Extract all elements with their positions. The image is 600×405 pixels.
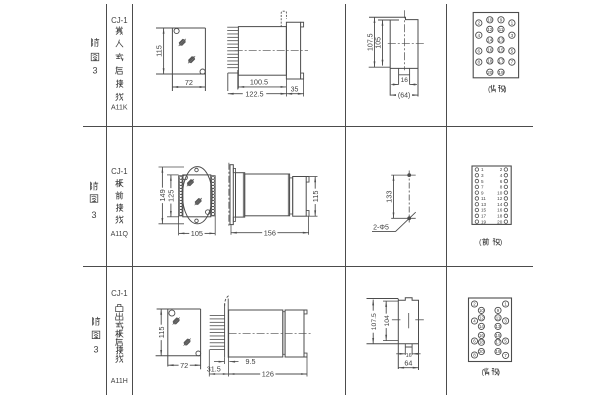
svg-text:3: 3 <box>92 66 97 76</box>
svg-text:72: 72 <box>180 361 188 370</box>
svg-text:1: 1 <box>481 167 484 172</box>
svg-text:20: 20 <box>497 219 503 224</box>
svg-text:13: 13 <box>498 38 504 43</box>
svg-text:104: 104 <box>384 315 391 327</box>
svg-text:20: 20 <box>487 70 493 75</box>
svg-text:115: 115 <box>311 190 320 202</box>
svg-text:2: 2 <box>477 21 480 26</box>
svg-text:11: 11 <box>496 315 501 320</box>
svg-text:A11K: A11K <box>111 105 128 112</box>
svg-text:12: 12 <box>479 315 484 320</box>
svg-text:18: 18 <box>479 340 484 345</box>
svg-text:133: 133 <box>385 191 394 203</box>
svg-text:3: 3 <box>93 344 98 354</box>
svg-text:16: 16 <box>497 208 503 213</box>
svg-text:11: 11 <box>481 196 486 201</box>
svg-text:2-Φ5: 2-Φ5 <box>373 224 389 231</box>
svg-text:10: 10 <box>487 17 493 22</box>
svg-text:18: 18 <box>487 59 493 64</box>
svg-text:20: 20 <box>479 349 484 354</box>
svg-text:115: 115 <box>155 45 164 57</box>
svg-text:18: 18 <box>497 214 503 219</box>
svg-text:16: 16 <box>479 333 484 338</box>
svg-text:16: 16 <box>487 47 493 52</box>
svg-text:156: 156 <box>264 228 276 237</box>
svg-text:CJ-1: CJ-1 <box>111 167 127 176</box>
svg-text:A11H: A11H <box>111 378 128 385</box>
svg-text:107.5: 107.5 <box>371 313 378 330</box>
svg-text:31.5: 31.5 <box>207 365 221 374</box>
svg-text:(64): (64) <box>398 93 410 100</box>
svg-text:4: 4 <box>500 173 503 178</box>
svg-text:14: 14 <box>479 324 484 329</box>
svg-text:100.5: 100.5 <box>250 78 268 87</box>
svg-text:17: 17 <box>498 59 504 64</box>
svg-text:10: 10 <box>479 308 484 313</box>
svg-text:6: 6 <box>500 179 503 184</box>
svg-text:5: 5 <box>481 179 484 184</box>
svg-text:7: 7 <box>481 185 484 190</box>
svg-text:122.5: 122.5 <box>245 89 263 98</box>
svg-text:14: 14 <box>497 202 503 207</box>
svg-text:CJ-1: CJ-1 <box>111 16 127 25</box>
svg-text:19: 19 <box>481 219 487 224</box>
svg-text:35: 35 <box>291 87 299 94</box>
svg-text:16: 16 <box>401 77 409 84</box>
svg-text:12: 12 <box>487 27 493 32</box>
svg-text:17: 17 <box>481 214 487 219</box>
svg-text:107.5: 107.5 <box>368 33 375 51</box>
svg-text:8: 8 <box>500 185 503 190</box>
svg-text:17: 17 <box>496 340 501 345</box>
svg-text:2: 2 <box>500 167 503 172</box>
svg-text:9.5: 9.5 <box>246 357 256 366</box>
svg-text:10: 10 <box>497 190 503 195</box>
svg-text:13: 13 <box>481 202 487 207</box>
svg-text:5: 5 <box>511 49 514 54</box>
svg-text:3: 3 <box>481 173 484 178</box>
svg-text:115: 115 <box>157 327 166 339</box>
svg-text:126: 126 <box>262 370 274 379</box>
svg-text:11: 11 <box>499 27 504 32</box>
svg-text:72: 72 <box>185 78 193 87</box>
svg-text:3: 3 <box>511 33 514 38</box>
svg-text:A11Q: A11Q <box>111 231 129 238</box>
svg-text:14: 14 <box>487 38 493 43</box>
svg-text:19: 19 <box>496 349 501 354</box>
svg-text:64: 64 <box>404 359 412 368</box>
svg-text:1: 1 <box>511 21 514 26</box>
svg-text:125: 125 <box>167 190 176 202</box>
svg-text:9: 9 <box>481 190 484 195</box>
svg-text:15: 15 <box>496 333 501 338</box>
svg-text:15: 15 <box>498 47 504 52</box>
svg-text:6: 6 <box>477 49 480 54</box>
svg-text:12: 12 <box>497 196 503 201</box>
svg-text:CJ-1: CJ-1 <box>111 289 127 298</box>
svg-text:9: 9 <box>500 17 503 22</box>
svg-text:105: 105 <box>191 229 203 238</box>
svg-text:8: 8 <box>477 60 480 65</box>
svg-text:19: 19 <box>498 70 504 75</box>
svg-text:15: 15 <box>481 208 487 213</box>
svg-text:3: 3 <box>91 210 96 220</box>
svg-text:7: 7 <box>511 60 514 65</box>
svg-text:105: 105 <box>376 37 383 49</box>
svg-text:4: 4 <box>477 33 480 38</box>
svg-text:13: 13 <box>496 324 501 329</box>
